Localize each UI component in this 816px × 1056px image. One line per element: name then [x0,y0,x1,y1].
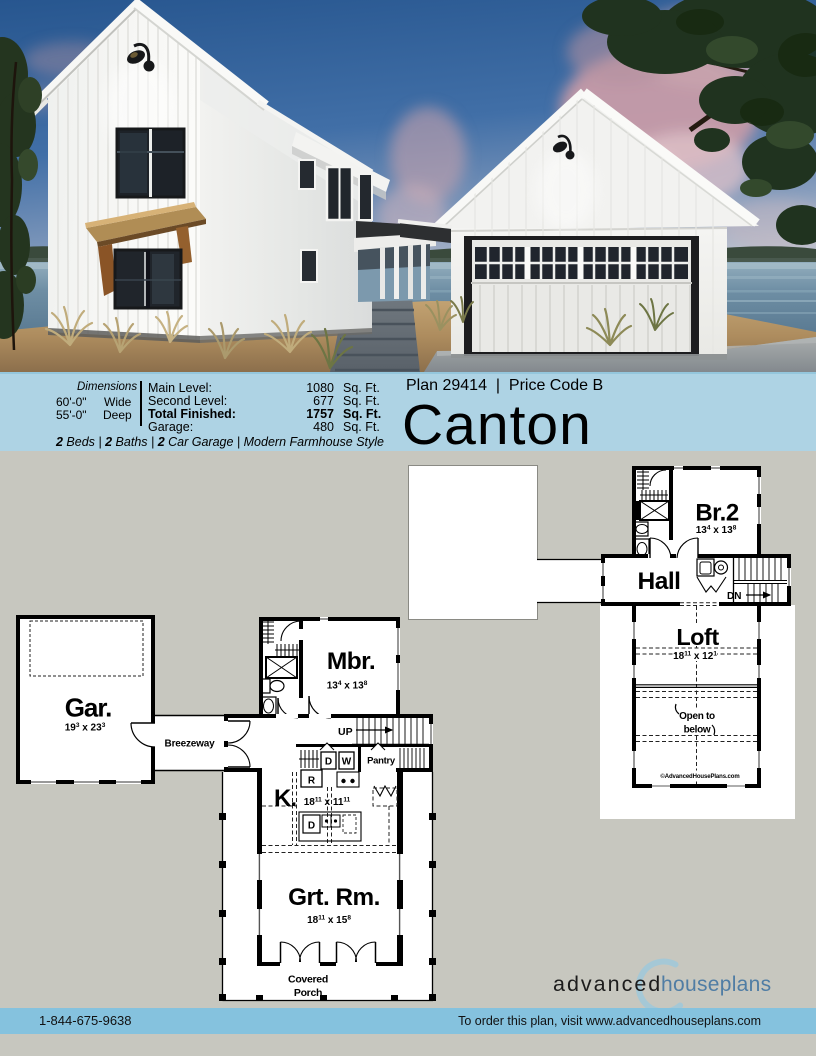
svg-text:K.: K. [274,785,296,812]
svg-text:134 x 138: 134 x 138 [327,680,368,692]
svg-text:DN: DN [727,591,741,602]
svg-text:134 x 138: 134 x 138 [696,525,737,537]
svg-text:Mbr.: Mbr. [327,648,375,675]
svg-text:advanced: advanced [553,972,662,996]
svg-text:1811 x 158: 1811 x 158 [307,915,351,927]
svg-text:Grt. Rm.: Grt. Rm. [288,884,380,911]
svg-text:below: below [684,725,711,736]
svg-text:D: D [308,821,315,832]
svg-text:Porch: Porch [294,987,322,999]
svg-text:Breezeway: Breezeway [165,739,216,750]
svg-text:Gar.: Gar. [65,693,112,723]
svg-text:Br.2: Br.2 [695,500,739,527]
svg-text:Pantry: Pantry [367,756,396,767]
svg-text:193 x 233: 193 x 233 [65,722,106,734]
svg-text:W: W [342,757,352,768]
svg-text:R: R [308,776,316,787]
svg-text:©AdvancedHousePlans.com: ©AdvancedHousePlans.com [660,773,739,780]
svg-text:Covered: Covered [288,974,328,986]
svg-text:D: D [325,757,332,768]
svg-text:Open to: Open to [679,711,715,722]
svg-text:houseplans: houseplans [661,973,771,996]
svg-text:Loft: Loft [676,624,719,650]
svg-text:UP: UP [338,726,353,738]
svg-text:1811 x 121: 1811 x 121 [673,651,717,663]
svg-text:Hall: Hall [638,568,681,595]
